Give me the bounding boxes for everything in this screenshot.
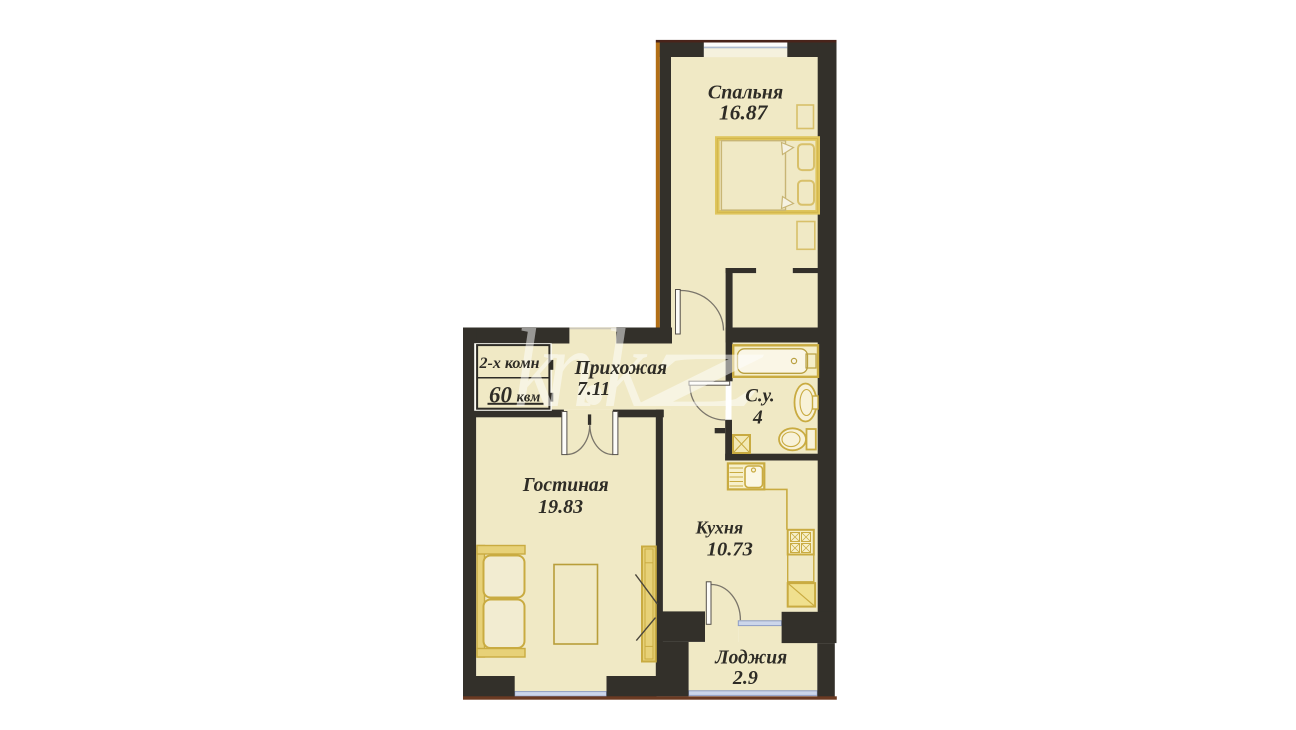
svg-text:Прихожая: Прихожая <box>574 358 667 379</box>
svg-text:7.11: 7.11 <box>577 379 610 400</box>
svg-text:Лоджия: Лоджия <box>714 648 787 669</box>
svg-text:квм: квм <box>517 390 541 406</box>
svg-text:10.73: 10.73 <box>707 539 753 561</box>
svg-text:4: 4 <box>752 408 763 429</box>
svg-text:С.у.: С.у. <box>745 386 774 407</box>
svg-text:2-х комн: 2-х комн <box>479 355 540 372</box>
svg-text:60: 60 <box>489 383 513 408</box>
svg-text:2.9: 2.9 <box>732 667 758 689</box>
svg-text:19.83: 19.83 <box>538 496 583 518</box>
svg-text:Кухня: Кухня <box>695 518 743 538</box>
svg-text:16.87: 16.87 <box>719 101 769 125</box>
svg-text:Гостиная: Гостиная <box>522 475 609 496</box>
